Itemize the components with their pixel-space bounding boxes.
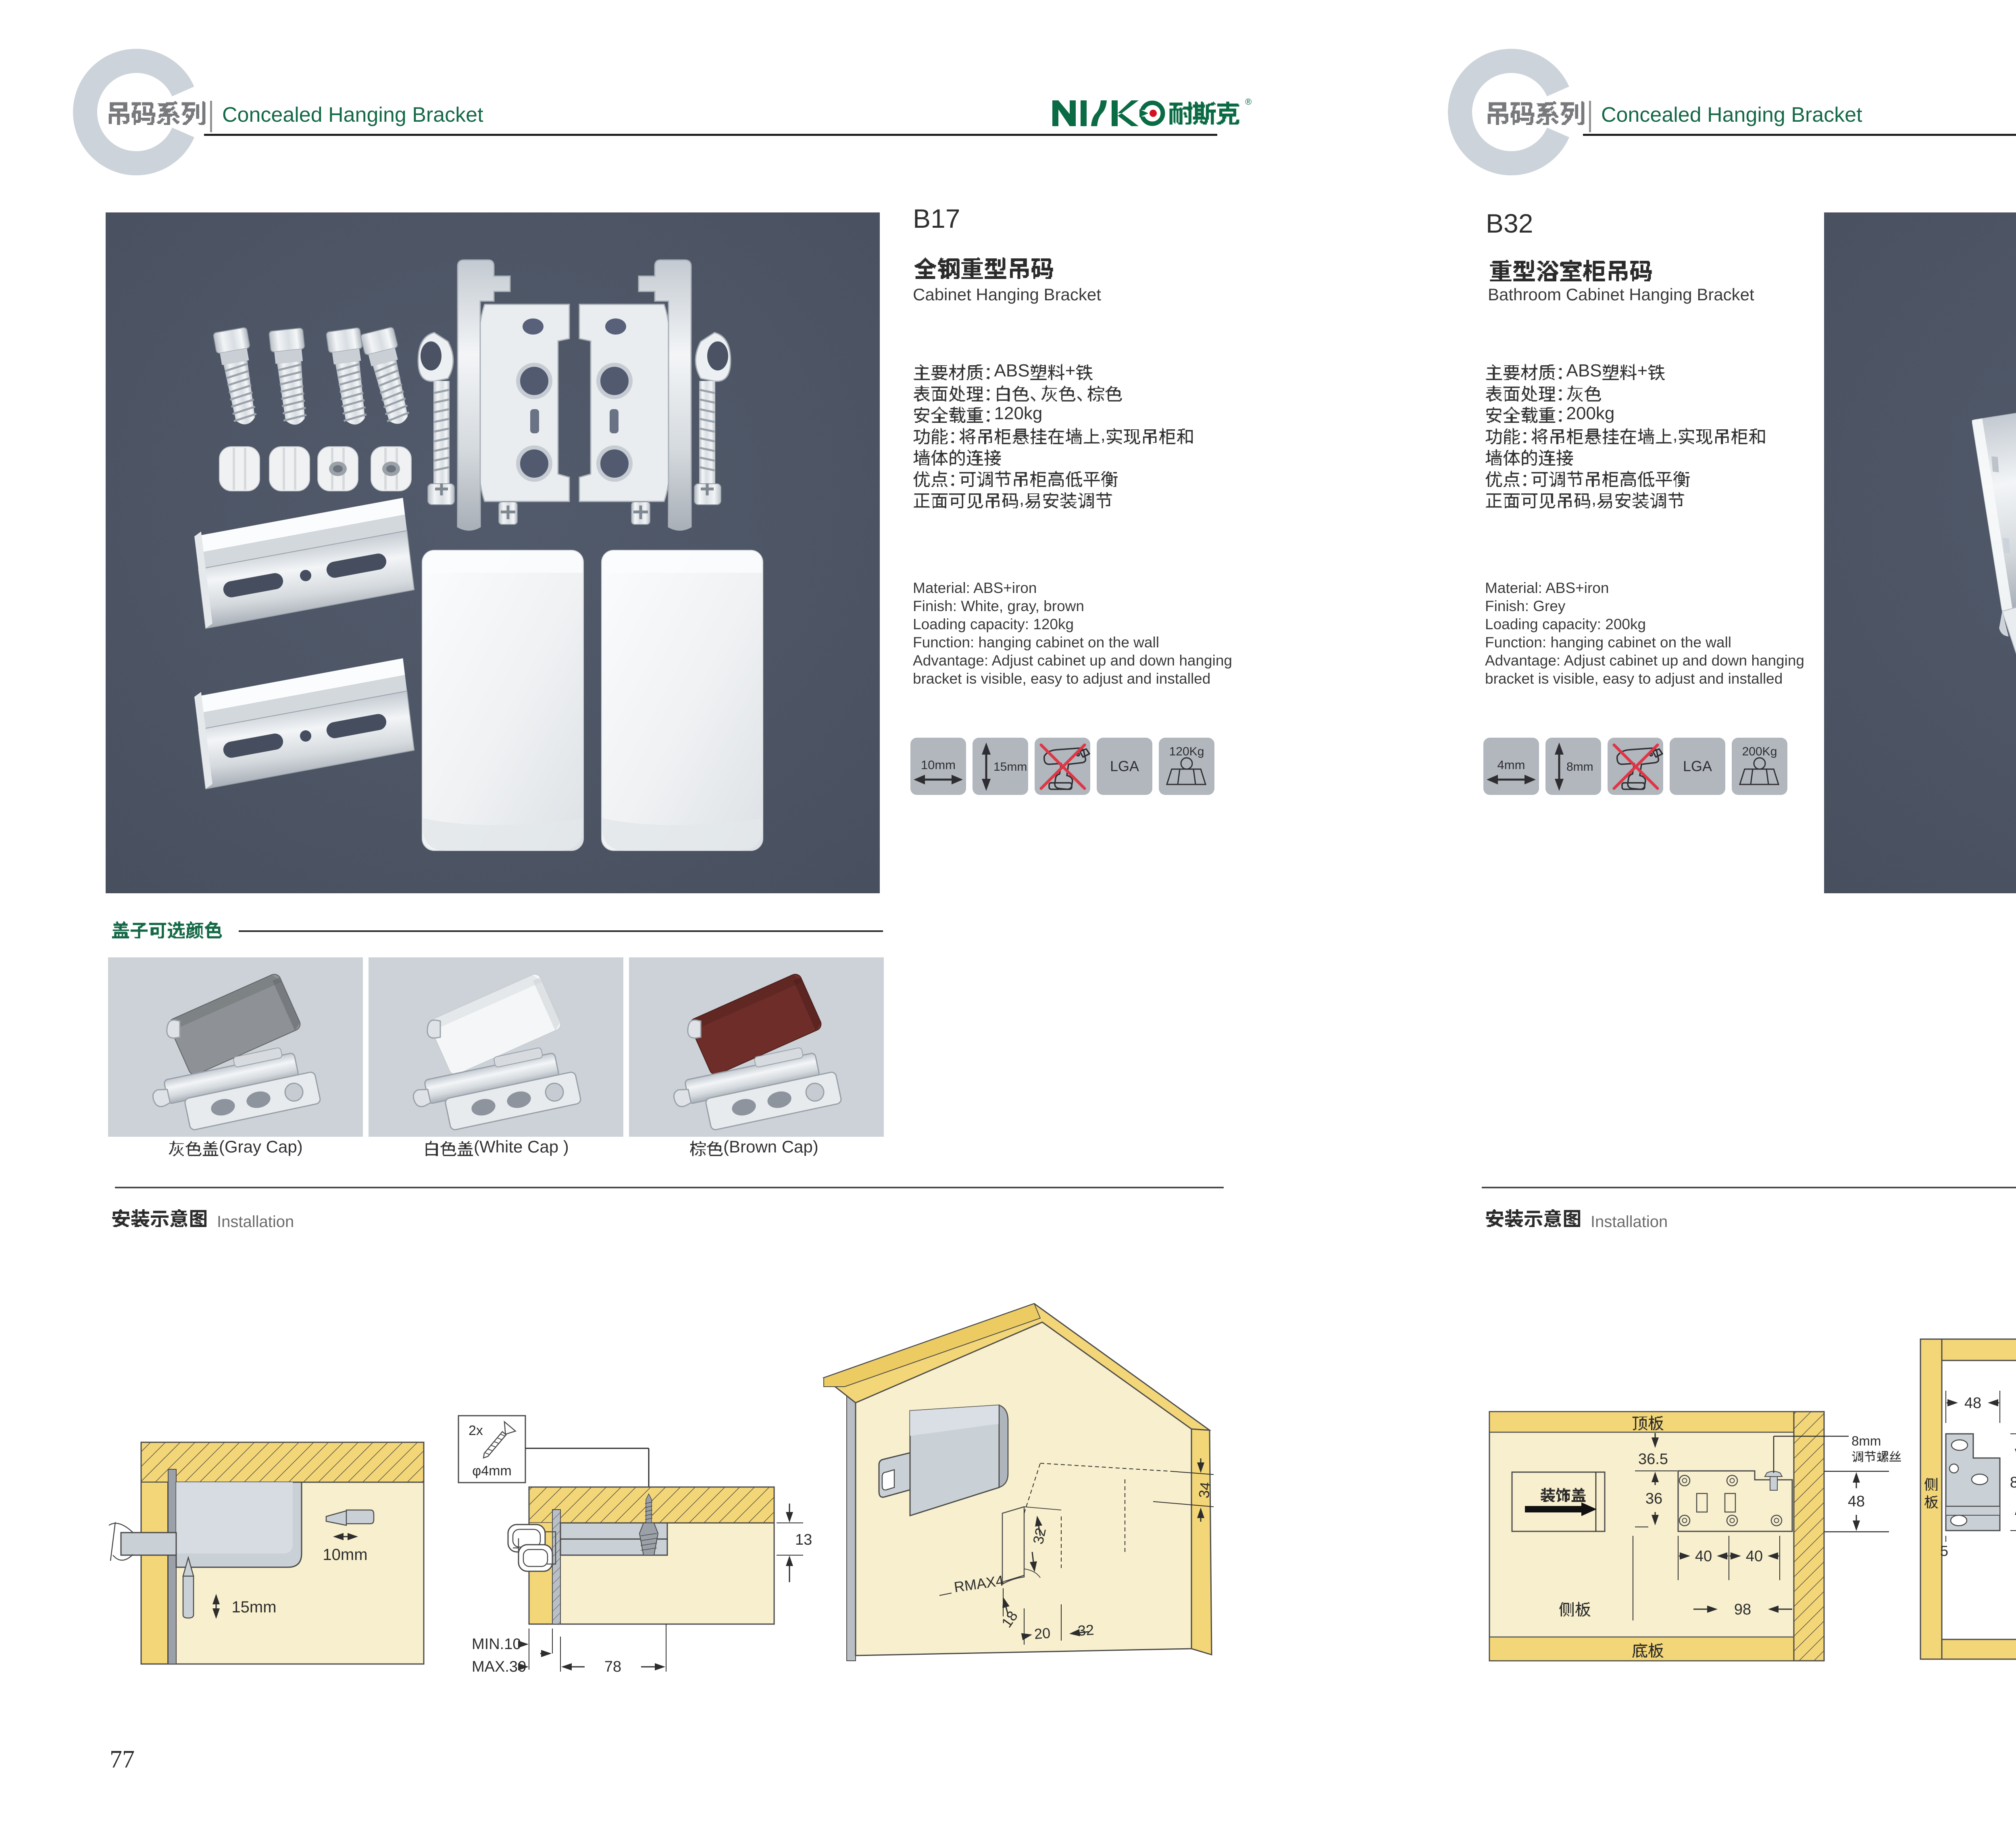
svg-text:15mm: 15mm — [231, 1598, 276, 1616]
svg-text:φ4mm: φ4mm — [472, 1463, 512, 1479]
svg-text:32: 32 — [1030, 1527, 1049, 1546]
svg-text:20: 20 — [1034, 1624, 1051, 1642]
svg-text:36: 36 — [1645, 1490, 1662, 1507]
svg-text:MIN.10: MIN.10 — [472, 1636, 521, 1653]
svg-text:78: 78 — [604, 1658, 621, 1675]
svg-text:8mm: 8mm — [1566, 760, 1593, 774]
svg-text:(Brown Cap): (Brown Cap) — [723, 1137, 818, 1156]
svg-text:40: 40 — [1695, 1548, 1712, 1565]
svg-text:36.5: 36.5 — [1638, 1451, 1668, 1468]
svg-text:MAX.30: MAX.30 — [472, 1658, 526, 1675]
svg-text:34: 34 — [1195, 1481, 1214, 1499]
svg-text:(White Cap ): (White Cap ) — [474, 1137, 569, 1156]
svg-text:80: 80 — [2010, 1474, 2016, 1491]
svg-text:40: 40 — [1746, 1548, 1763, 1565]
svg-text:10mm: 10mm — [323, 1546, 367, 1564]
svg-text:LGA: LGA — [1683, 758, 1712, 774]
svg-text:98: 98 — [1734, 1601, 1751, 1618]
svg-text:5: 5 — [1940, 1543, 1948, 1559]
svg-text:(Gray Cap): (Gray Cap) — [219, 1137, 303, 1156]
svg-text:32: 32 — [1077, 1621, 1095, 1639]
svg-text:48: 48 — [1964, 1395, 1981, 1412]
svg-text:2x: 2x — [469, 1423, 483, 1438]
svg-text:200Kg: 200Kg — [1742, 745, 1777, 758]
svg-text:48: 48 — [1848, 1493, 1865, 1510]
svg-text:4mm: 4mm — [1497, 758, 1525, 772]
